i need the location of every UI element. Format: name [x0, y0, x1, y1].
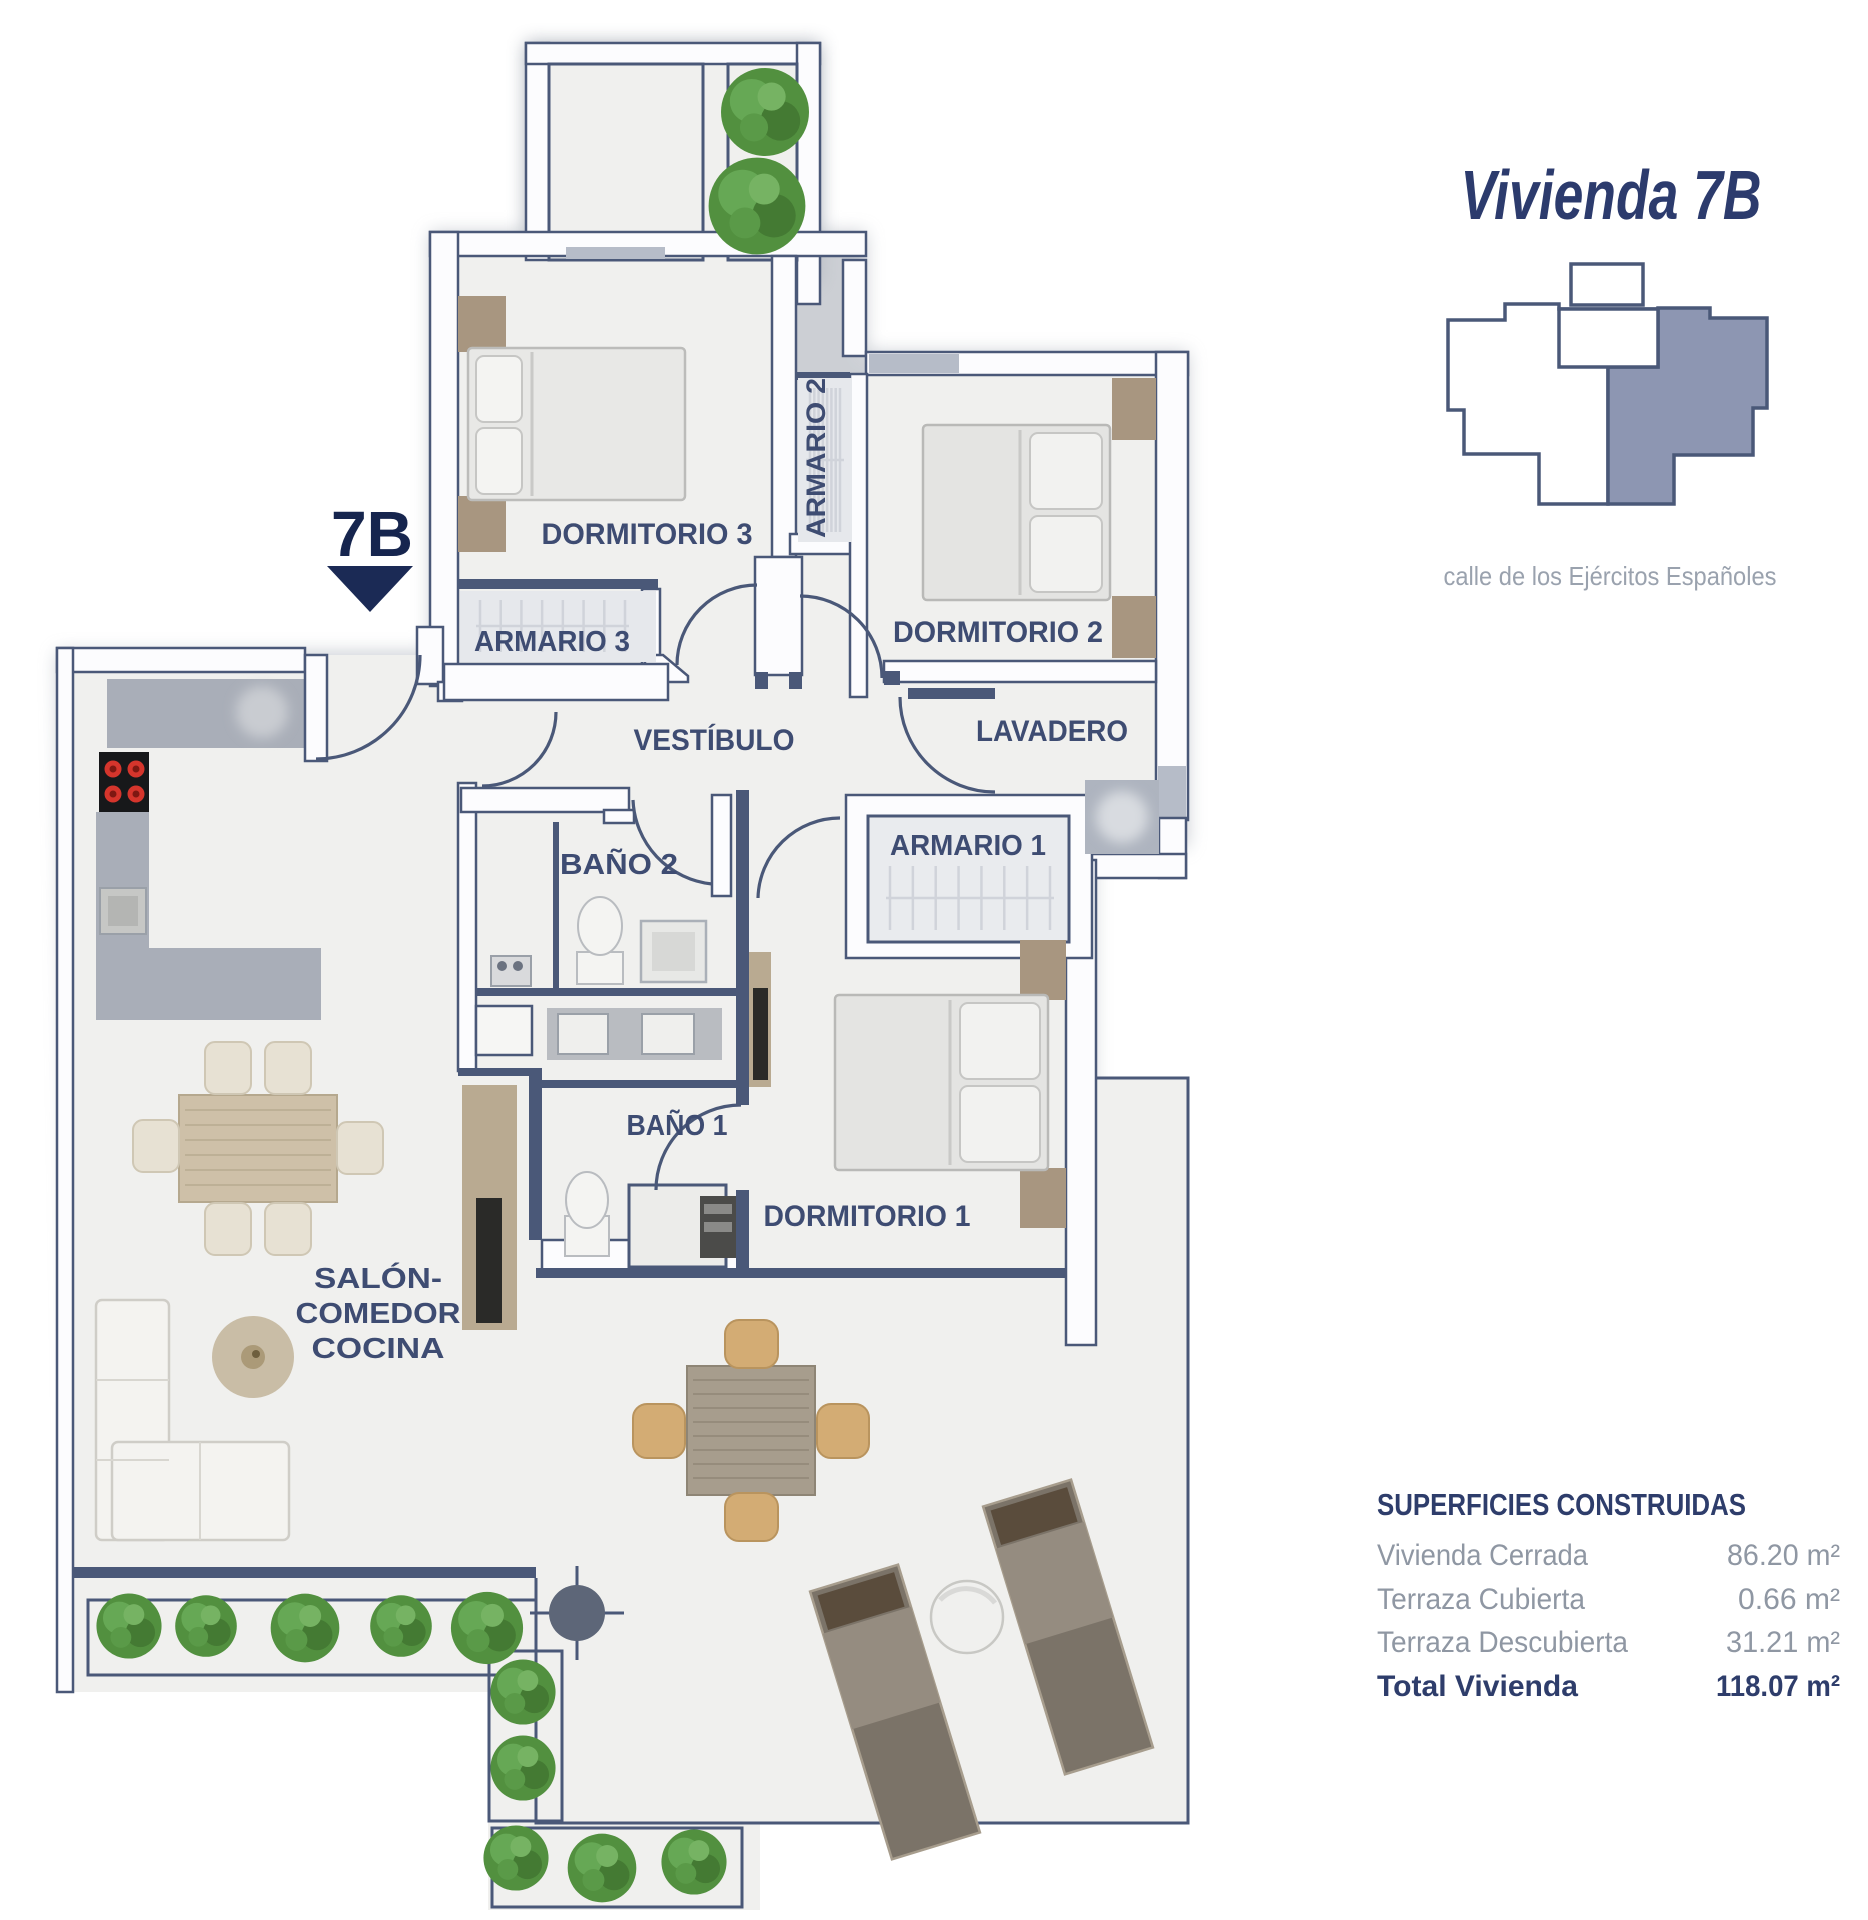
svg-text:Vivienda Cerrada: Vivienda Cerrada — [1377, 1539, 1588, 1572]
svg-text:0.66 m²: 0.66 m² — [1738, 1583, 1840, 1616]
svg-text:COCINA: COCINA — [312, 1333, 445, 1365]
svg-text:BAÑO 1: BAÑO 1 — [627, 1108, 728, 1142]
svg-text:COMEDOR: COMEDOR — [296, 1298, 461, 1330]
svg-text:ARMARIO 2: ARMARIO 2 — [801, 378, 831, 538]
svg-text:DORMITORIO 3: DORMITORIO 3 — [542, 518, 753, 551]
svg-text:7B: 7B — [331, 498, 413, 570]
svg-text:Total Vivienda: Total Vivienda — [1377, 1670, 1578, 1703]
svg-text:DORMITORIO 1: DORMITORIO 1 — [764, 1200, 971, 1233]
svg-text:86.20 m²: 86.20 m² — [1727, 1539, 1840, 1572]
svg-text:VESTÍBULO: VESTÍBULO — [634, 723, 795, 757]
svg-text:SALÓN-: SALÓN- — [314, 1261, 442, 1295]
svg-text:ARMARIO 3: ARMARIO 3 — [474, 626, 630, 658]
svg-text:118.07 m²: 118.07 m² — [1716, 1670, 1840, 1703]
svg-text:ARMARIO 1: ARMARIO 1 — [890, 830, 1046, 862]
svg-text:Terraza Descubierta: Terraza Descubierta — [1377, 1626, 1628, 1659]
svg-text:SUPERFICIES CONSTRUIDAS: SUPERFICIES CONSTRUIDAS — [1377, 1487, 1746, 1522]
svg-text:Terraza Cubierta: Terraza Cubierta — [1377, 1583, 1585, 1616]
svg-text:calle de los Ejércitos Español: calle de los Ejércitos Españoles — [1444, 561, 1777, 591]
svg-text:31.21 m²: 31.21 m² — [1726, 1626, 1840, 1659]
svg-text:DORMITORIO 2: DORMITORIO 2 — [893, 616, 1103, 649]
svg-text:Vivienda 7B: Vivienda 7B — [1461, 156, 1762, 234]
svg-text:LAVADERO: LAVADERO — [976, 715, 1128, 748]
svg-text:BAÑO 2: BAÑO 2 — [560, 847, 678, 881]
